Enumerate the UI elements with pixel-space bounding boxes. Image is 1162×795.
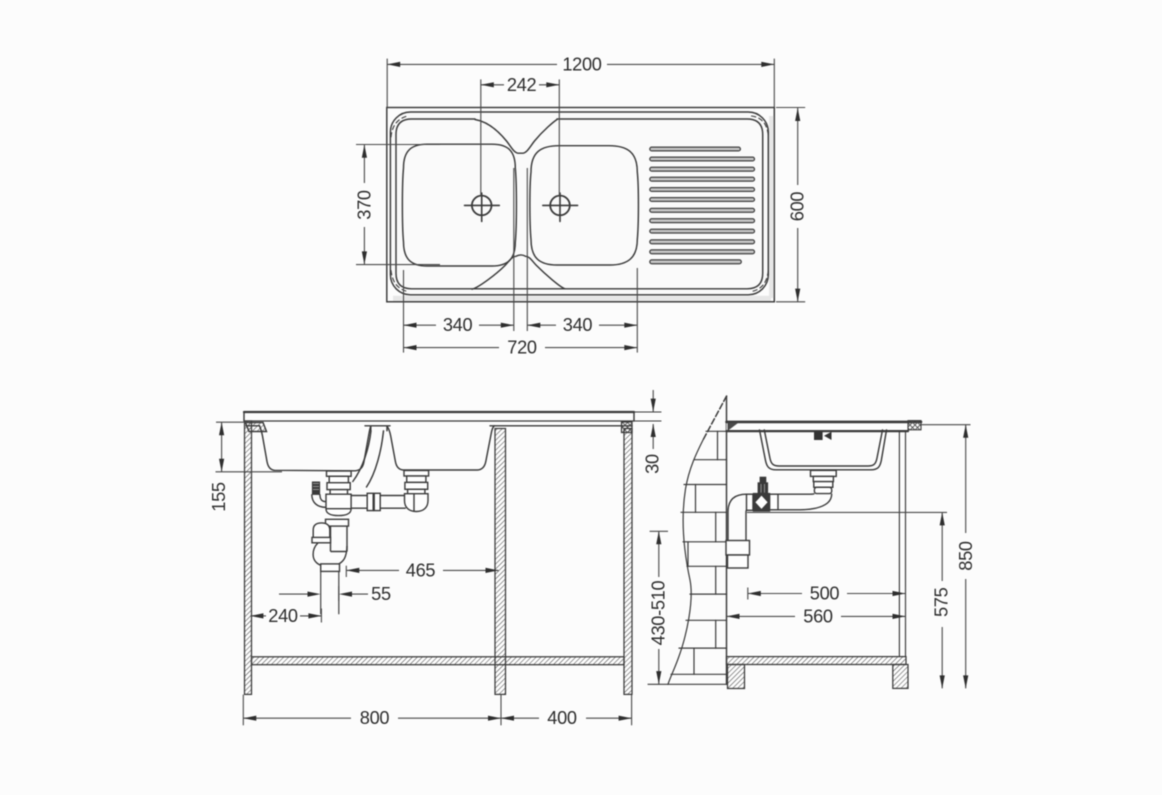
- svg-text:240: 240: [268, 606, 298, 626]
- svg-text:720: 720: [507, 338, 537, 358]
- svg-text:370: 370: [354, 190, 374, 220]
- svg-text:560: 560: [803, 606, 833, 626]
- svg-text:55: 55: [371, 584, 391, 604]
- svg-text:500: 500: [810, 584, 840, 604]
- svg-text:1200: 1200: [562, 54, 601, 74]
- svg-text:800: 800: [360, 708, 390, 728]
- svg-text:850: 850: [956, 541, 976, 571]
- svg-text:155: 155: [209, 482, 229, 512]
- svg-text:465: 465: [406, 560, 436, 580]
- svg-text:430-510: 430-510: [648, 580, 668, 645]
- svg-text:575: 575: [932, 587, 952, 617]
- svg-text:340: 340: [443, 315, 473, 335]
- svg-text:600: 600: [788, 192, 808, 222]
- svg-text:400: 400: [547, 708, 577, 728]
- svg-text:242: 242: [507, 75, 537, 95]
- svg-text:340: 340: [563, 315, 593, 335]
- svg-text:30: 30: [643, 454, 663, 474]
